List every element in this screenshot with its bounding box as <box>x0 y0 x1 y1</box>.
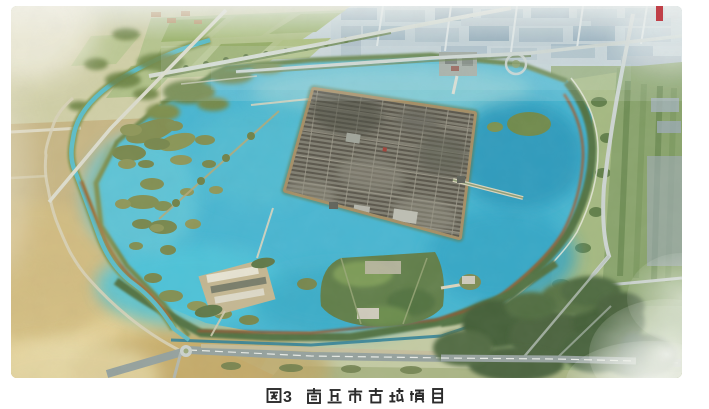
svg-text:3: 3 <box>283 389 292 406</box>
